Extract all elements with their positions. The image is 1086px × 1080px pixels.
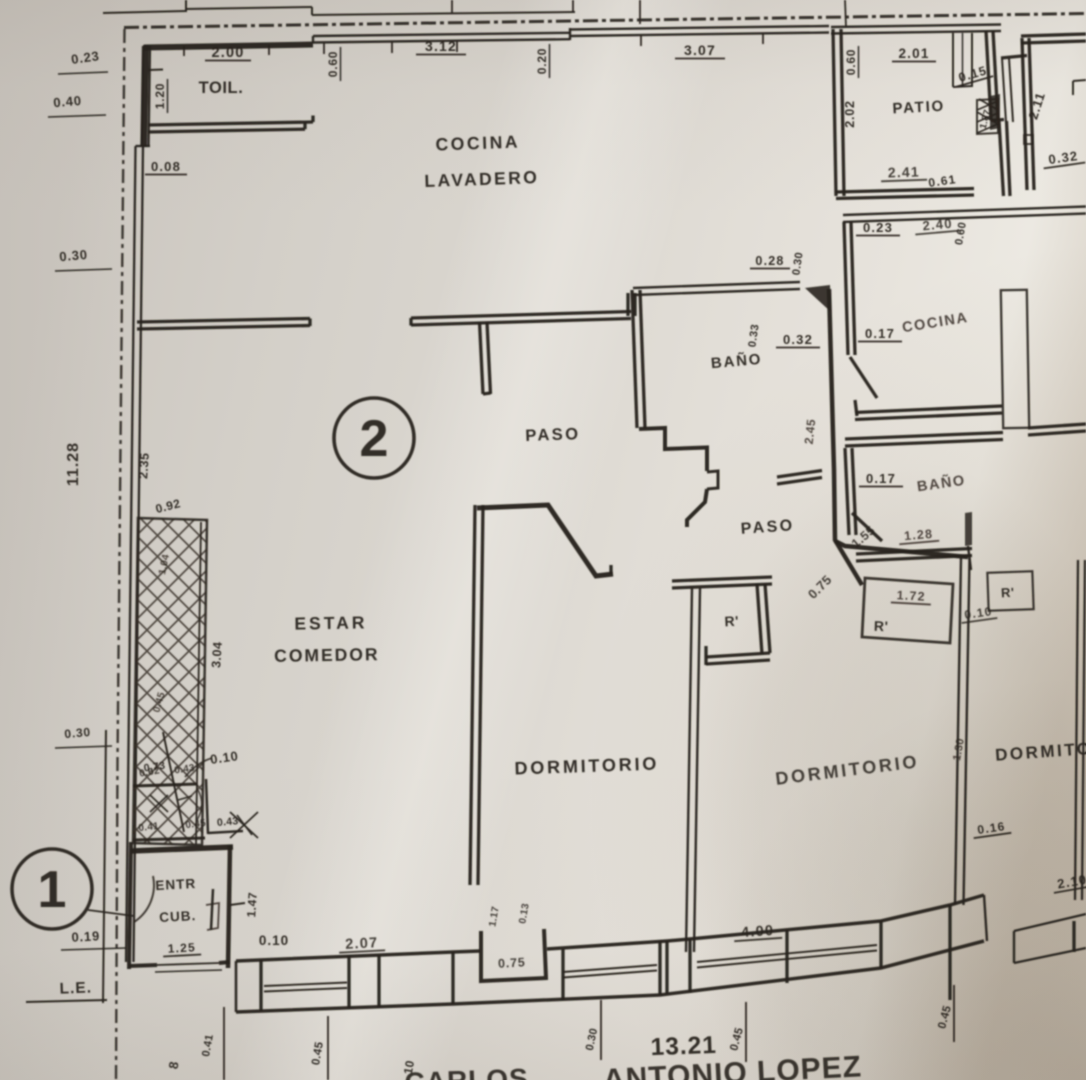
svg-text:0.20: 0.20 [535,48,549,75]
svg-text:CUB.: CUB. [159,908,197,925]
svg-text:0.30: 0.30 [64,725,92,741]
svg-text:LAVADERO: LAVADERO [424,167,539,191]
svg-text:TOIL.: TOIL. [199,79,244,97]
svg-text:0.19: 0.19 [71,928,100,944]
svg-text:0.17: 0.17 [866,471,896,486]
svg-text:0.08: 0.08 [151,159,181,174]
svg-text:3.04: 3.04 [209,641,225,668]
svg-text:0.45: 0.45 [185,818,207,831]
svg-text:0.75: 0.75 [498,955,526,970]
svg-text:COMEDOR: COMEDOR [274,644,380,666]
svg-text:2.41: 2.41 [888,163,921,180]
svg-text:1.25: 1.25 [167,940,196,955]
svg-text:0.30: 0.30 [59,247,89,264]
svg-text:1.20: 1.20 [153,83,167,110]
svg-text:0.41: 0.41 [138,821,160,834]
svg-text:1.47: 1.47 [244,892,260,918]
svg-text:1: 1 [38,861,67,919]
svg-text:2: 2 [360,410,389,468]
svg-text:0.40: 0.40 [53,93,83,110]
svg-text:ESTAR: ESTAR [294,612,367,633]
svg-text:0.17: 0.17 [865,326,895,341]
svg-text:11.28: 11.28 [65,442,82,486]
svg-text:PATIO: PATIO [892,98,945,118]
svg-text:3.12: 3.12 [425,38,457,54]
svg-text:0.10: 0.10 [259,933,289,948]
svg-text:0.23: 0.23 [863,220,893,235]
svg-text:0.43: 0.43 [216,815,239,829]
svg-text:2.45: 2.45 [802,418,819,445]
svg-text:L.E.: L.E. [59,979,92,997]
svg-text:COCINA: COCINA [435,132,520,155]
svg-text:1.72: 1.72 [896,588,926,604]
svg-text:R': R' [874,618,889,634]
svg-text:2.01: 2.01 [898,46,929,61]
svg-text:2.00: 2.00 [211,45,244,61]
svg-text:0.60: 0.60 [326,51,340,78]
svg-text:ENTR: ENTR [155,876,196,893]
svg-text:2.35: 2.35 [136,452,152,479]
svg-text:0.60: 0.60 [844,49,858,76]
svg-text:PASO: PASO [525,425,581,445]
svg-text:13.21: 13.21 [650,1032,717,1061]
svg-text:R': R' [1001,585,1015,601]
svg-text:0.28: 0.28 [755,254,784,268]
svg-text:0.32: 0.32 [783,332,813,347]
svg-text:2.02: 2.02 [843,100,857,128]
svg-text:2.40: 2.40 [922,216,953,234]
svg-text:R': R' [724,613,739,630]
svg-text:3.07: 3.07 [684,42,716,58]
